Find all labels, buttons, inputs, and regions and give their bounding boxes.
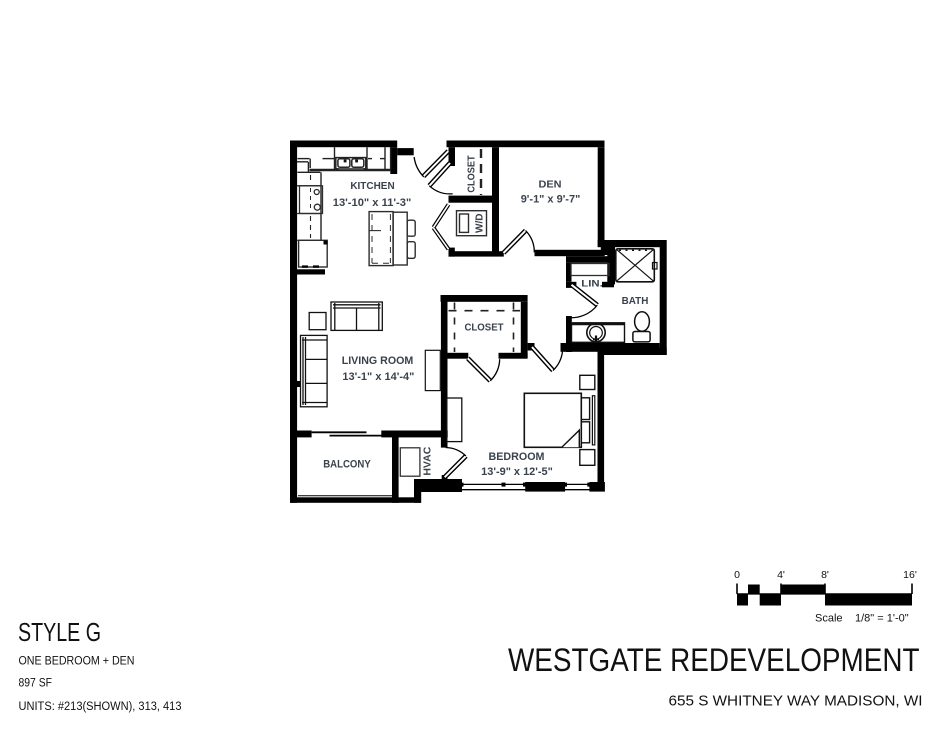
svg-text:LIN.: LIN. <box>581 278 603 289</box>
svg-text:13'-1" x 14'-4": 13'-1" x 14'-4" <box>342 371 414 383</box>
svg-text:897 SF: 897 SF <box>19 678 53 690</box>
svg-text:13'-10" x 11'-3": 13'-10" x 11'-3" <box>333 197 412 209</box>
svg-text:13'-9" x 12'-5": 13'-9" x 12'-5" <box>481 466 553 478</box>
svg-text:16': 16' <box>903 569 917 581</box>
svg-text:STYLE G: STYLE G <box>18 617 101 647</box>
svg-text:Scale: Scale <box>815 613 843 625</box>
svg-text:WESTGATE REDEVELOPMENT: WESTGATE REDEVELOPMENT <box>508 642 920 678</box>
svg-text:BALCONY: BALCONY <box>323 459 371 471</box>
svg-text:4': 4' <box>777 569 785 581</box>
svg-text:655 S WHITNEY WAY MADISON, WI: 655 S WHITNEY WAY MADISON, WI <box>669 692 923 709</box>
svg-text:1/8" = 1'-0": 1/8" = 1'-0" <box>855 613 909 625</box>
svg-text:CLOSET: CLOSET <box>467 155 478 192</box>
svg-text:CLOSET: CLOSET <box>464 322 504 334</box>
svg-text:8': 8' <box>821 569 829 581</box>
svg-text:9'-1" x 9'-7": 9'-1" x 9'-7" <box>521 194 581 206</box>
svg-text:0: 0 <box>734 569 740 581</box>
svg-text:W/D: W/D <box>475 213 486 233</box>
svg-text:BATH: BATH <box>622 295 649 307</box>
svg-text:ONE BEDROOM + DEN: ONE BEDROOM + DEN <box>19 656 135 668</box>
svg-text:KITCHEN: KITCHEN <box>350 180 394 192</box>
svg-text:BEDROOM: BEDROOM <box>489 451 545 463</box>
svg-text:UNITS: #213(SHOWN), 313, 413: UNITS: #213(SHOWN), 313, 413 <box>19 701 182 713</box>
svg-text:HVAC: HVAC <box>423 447 434 476</box>
svg-text:DEN: DEN <box>539 178 562 190</box>
svg-text:LIVING ROOM: LIVING ROOM <box>342 355 414 367</box>
